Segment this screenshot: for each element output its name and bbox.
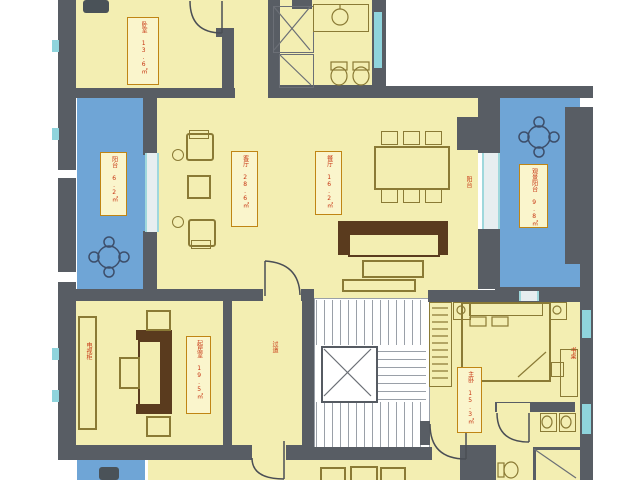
label-balcony-right: 观景阳台 9.8㎡ (519, 164, 548, 228)
wall-dining-east-lower (478, 229, 500, 289)
sofa-back (338, 221, 448, 233)
wall-balcony-lower (143, 231, 157, 295)
stool (172, 149, 184, 161)
window-gap (58, 272, 76, 282)
wardrobe (429, 302, 452, 387)
dining-chair (425, 131, 442, 145)
stair-flight-bottom (316, 402, 426, 448)
dining-chair (403, 189, 420, 203)
wall-bottom-mid (286, 445, 314, 460)
side-table (146, 416, 171, 437)
window-right-1 (582, 310, 591, 338)
label-text: 阳台 6.2㎡ (110, 156, 116, 202)
wall-left-outer (58, 0, 76, 460)
sofa-seat (348, 233, 440, 257)
sliding-door-left-balcony (145, 153, 159, 232)
side-table (187, 175, 211, 199)
wall-hall-right (302, 289, 314, 460)
label-text: 卧室 13.6㎡ (140, 21, 146, 74)
label-living: 客厅 28.6㎡ (231, 151, 258, 227)
label-text: 餐厅 16.2㎡ (325, 155, 331, 208)
wall-bedroom-top (428, 290, 593, 302)
window-tick (52, 40, 59, 52)
balcony-bedroom-door (519, 291, 539, 301)
window-gap (58, 170, 76, 178)
armchair (380, 467, 406, 480)
dining-chair (381, 189, 398, 203)
dining-chair (381, 131, 398, 145)
label-text: 主卧 15.3㎡ (466, 371, 472, 424)
wall-entry-stub (222, 28, 234, 95)
tv-cabinet (78, 316, 97, 430)
window-tick (52, 348, 59, 360)
wall-bottom-left (58, 445, 252, 460)
window-tick (52, 128, 59, 140)
wall-dining-east-upper (478, 95, 500, 153)
label-bedroom-top: 卧室 13.6㎡ (127, 17, 159, 85)
sofa-arm (338, 221, 348, 255)
label-desk: 书桌 (569, 347, 575, 359)
stair-flight-right (377, 348, 426, 400)
window-right-2 (582, 404, 591, 434)
armchair-back (189, 130, 209, 139)
sliding-door-right-balcony (482, 153, 500, 229)
desk-chair (551, 362, 564, 377)
dining-chair (403, 131, 420, 145)
stair-flight-top (316, 300, 426, 345)
shower-stall (273, 6, 314, 53)
sink (540, 413, 557, 432)
label-tv-cabinet: 电视柜 (85, 342, 91, 360)
nightstand (549, 302, 567, 320)
label-dining: 餐厅 16.2㎡ (315, 151, 342, 215)
wall-bedroom-door-stub (420, 421, 430, 445)
floor-plan: 卧室 13.6㎡ 阳台 6.2㎡ 客厅 28.6㎡ 餐厅 16.2㎡ 观景阳台 … (0, 0, 640, 480)
tv-stand (342, 279, 416, 292)
label-text: 起居室 19.5㎡ (195, 340, 201, 399)
wall-bath-br-left (460, 445, 496, 480)
elevator-shaft (321, 346, 378, 403)
dining-chair (425, 189, 442, 203)
sofa-seat (138, 340, 164, 406)
label-hallway: 过道 (271, 341, 277, 353)
label-family: 起居室 19.5㎡ (186, 336, 211, 414)
nightstand (453, 302, 471, 320)
label-balcony-note: 阳台 (465, 176, 471, 188)
sink (559, 413, 576, 432)
label-text: 观景阳台 9.8㎡ (530, 168, 536, 226)
vanity-counter (313, 4, 369, 32)
balcony-chair (99, 467, 119, 480)
door-opening (263, 289, 301, 301)
sofa-arm (136, 330, 162, 340)
wall-balcony-upper (143, 93, 157, 155)
window-top-right (374, 12, 382, 68)
stool (172, 216, 184, 228)
wall-dining-step (457, 117, 481, 150)
table (350, 466, 378, 480)
coffee-table (119, 357, 140, 389)
label-text: 客厅 28.6㎡ (241, 155, 247, 208)
coffee-table (362, 260, 424, 278)
door-opening (497, 403, 530, 412)
wall-stair-bottom (302, 447, 432, 460)
pillar-balcony-right (565, 107, 593, 264)
headboard (469, 303, 543, 316)
label-master-bedroom: 主卧 15.3㎡ (457, 367, 482, 433)
shower-stall (533, 447, 584, 480)
wall-hall-left (223, 301, 232, 448)
dining-table (374, 146, 450, 190)
armchair (320, 467, 346, 480)
side-table (146, 310, 171, 331)
washing-machine (279, 54, 314, 88)
wall-entry-cap (216, 28, 234, 37)
plant (83, 0, 109, 13)
armchair-back (191, 240, 211, 249)
window-tick (52, 390, 59, 402)
label-balcony-left: 阳台 6.2㎡ (100, 152, 127, 216)
